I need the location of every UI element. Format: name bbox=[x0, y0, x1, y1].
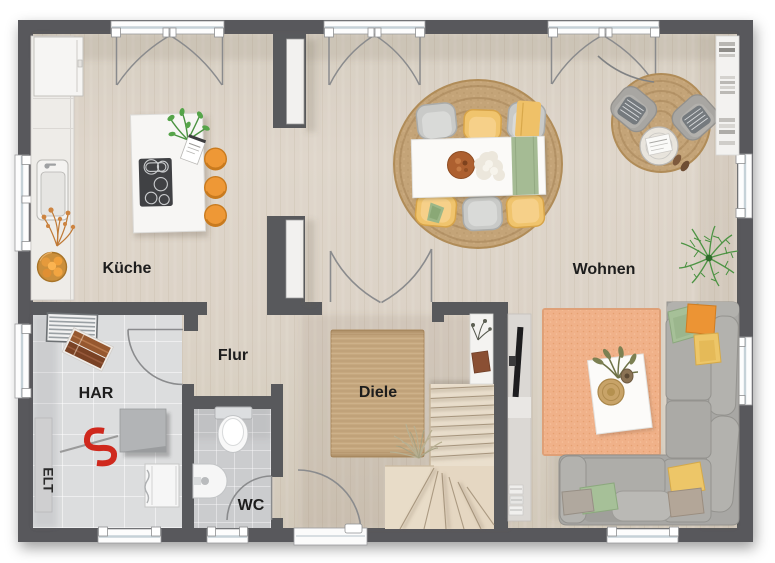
svg-text:HAR: HAR bbox=[79, 385, 114, 402]
svg-text:Küche: Küche bbox=[103, 260, 152, 277]
svg-text:Diele: Diele bbox=[359, 384, 397, 401]
svg-text:ELT: ELT bbox=[41, 467, 57, 493]
svg-text:WC: WC bbox=[238, 497, 265, 514]
svg-text:Flur: Flur bbox=[218, 347, 248, 364]
svg-text:Wohnen: Wohnen bbox=[573, 261, 636, 278]
